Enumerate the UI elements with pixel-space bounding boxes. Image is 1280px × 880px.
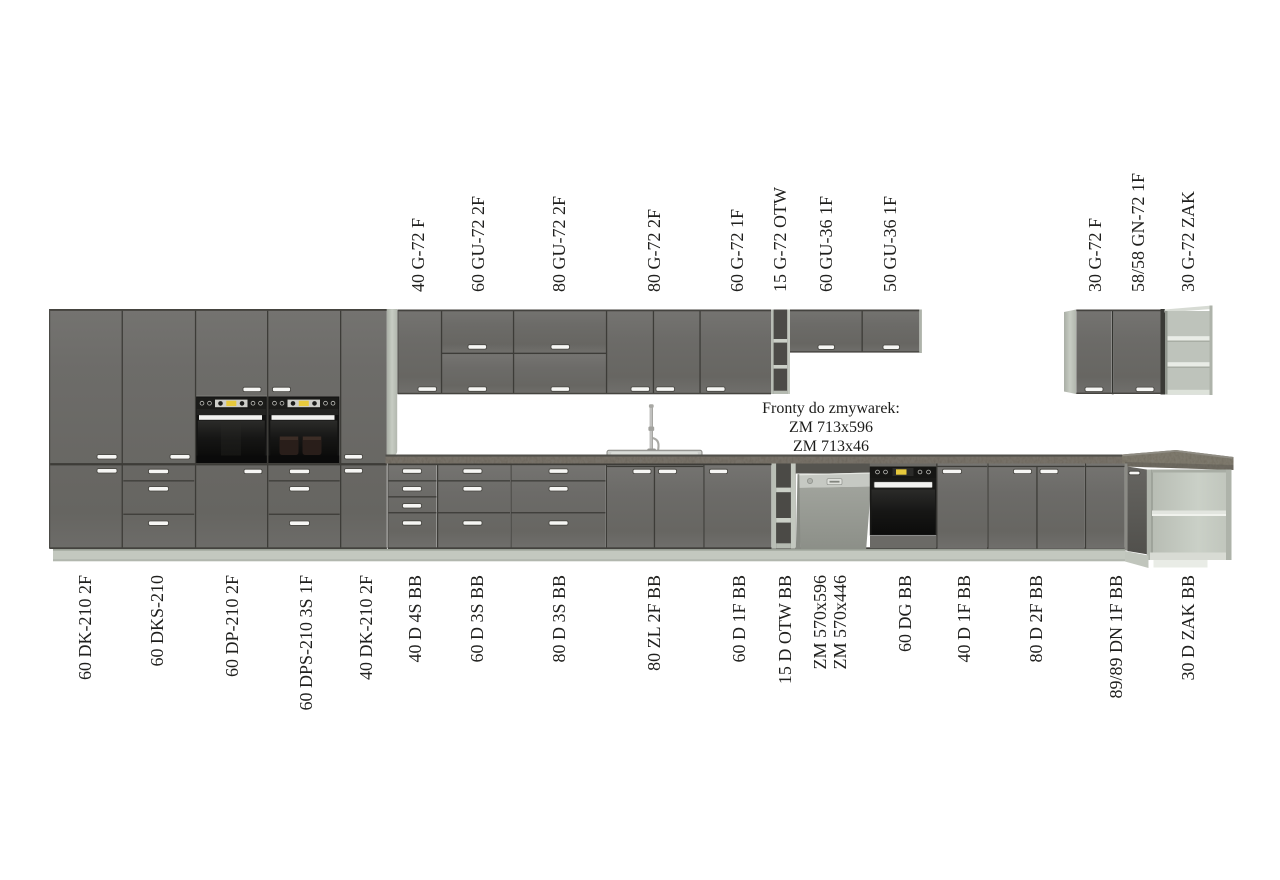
svg-text:60 GU-72 2F: 60 GU-72 2F [468, 196, 488, 292]
svg-text:40 DK-210 2F: 40 DK-210 2F [356, 575, 376, 680]
svg-text:58/58 GN-72 1F: 58/58 GN-72 1F [1128, 173, 1148, 292]
svg-text:60 GU-36 1F: 60 GU-36 1F [816, 196, 836, 292]
svg-text:ZM 570x446: ZM 570x446 [830, 575, 850, 670]
svg-text:40 D 1F BB: 40 D 1F BB [954, 575, 974, 663]
svg-text:80 GU-72 2F: 80 GU-72 2F [549, 196, 569, 292]
svg-text:60 D 3S BB: 60 D 3S BB [467, 575, 487, 663]
svg-text:80 D 2F BB: 80 D 2F BB [1026, 575, 1046, 663]
svg-text:30 D ZAK BB: 30 D ZAK BB [1178, 575, 1198, 681]
svg-text:60 DP-210 2F: 60 DP-210 2F [222, 575, 242, 677]
svg-text:60 D 1F BB: 60 D 1F BB [729, 575, 749, 663]
svg-text:89/89 DN 1F BB: 89/89 DN 1F BB [1106, 575, 1126, 699]
svg-text:30 G-72 F: 30 G-72 F [1085, 218, 1105, 292]
svg-text:Fronty do zmywarek:: Fronty do zmywarek: [762, 400, 900, 417]
svg-text:40 G-72 F: 40 G-72 F [408, 218, 428, 292]
svg-text:80 ZL 2F BB: 80 ZL 2F BB [644, 575, 664, 671]
svg-text:80 G-72 2F: 80 G-72 2F [644, 209, 664, 292]
svg-text:60 G-72 1F: 60 G-72 1F [727, 209, 747, 292]
svg-text:80 D 3S BB: 80 D 3S BB [549, 575, 569, 663]
svg-text:15 G-72 OTW: 15 G-72 OTW [770, 187, 790, 292]
svg-text:60 DK-210 2F: 60 DK-210 2F [75, 575, 95, 680]
svg-text:40 D 4S BB: 40 D 4S BB [405, 575, 425, 663]
svg-text:30 G-72 ZAK: 30 G-72 ZAK [1178, 191, 1198, 292]
svg-text:15 D OTW BB: 15 D OTW BB [775, 575, 795, 684]
svg-text:ZM 713x596: ZM 713x596 [789, 419, 873, 436]
svg-text:50 GU-36 1F: 50 GU-36 1F [880, 196, 900, 292]
svg-text:60 DPS-210 3S 1F: 60 DPS-210 3S 1F [296, 575, 316, 711]
svg-text:60 DKS-210: 60 DKS-210 [147, 575, 167, 667]
svg-text:ZM 570x596: ZM 570x596 [810, 575, 830, 670]
svg-text:ZM 713x46: ZM 713x46 [793, 438, 869, 455]
svg-text:60 DG BB: 60 DG BB [895, 575, 915, 652]
